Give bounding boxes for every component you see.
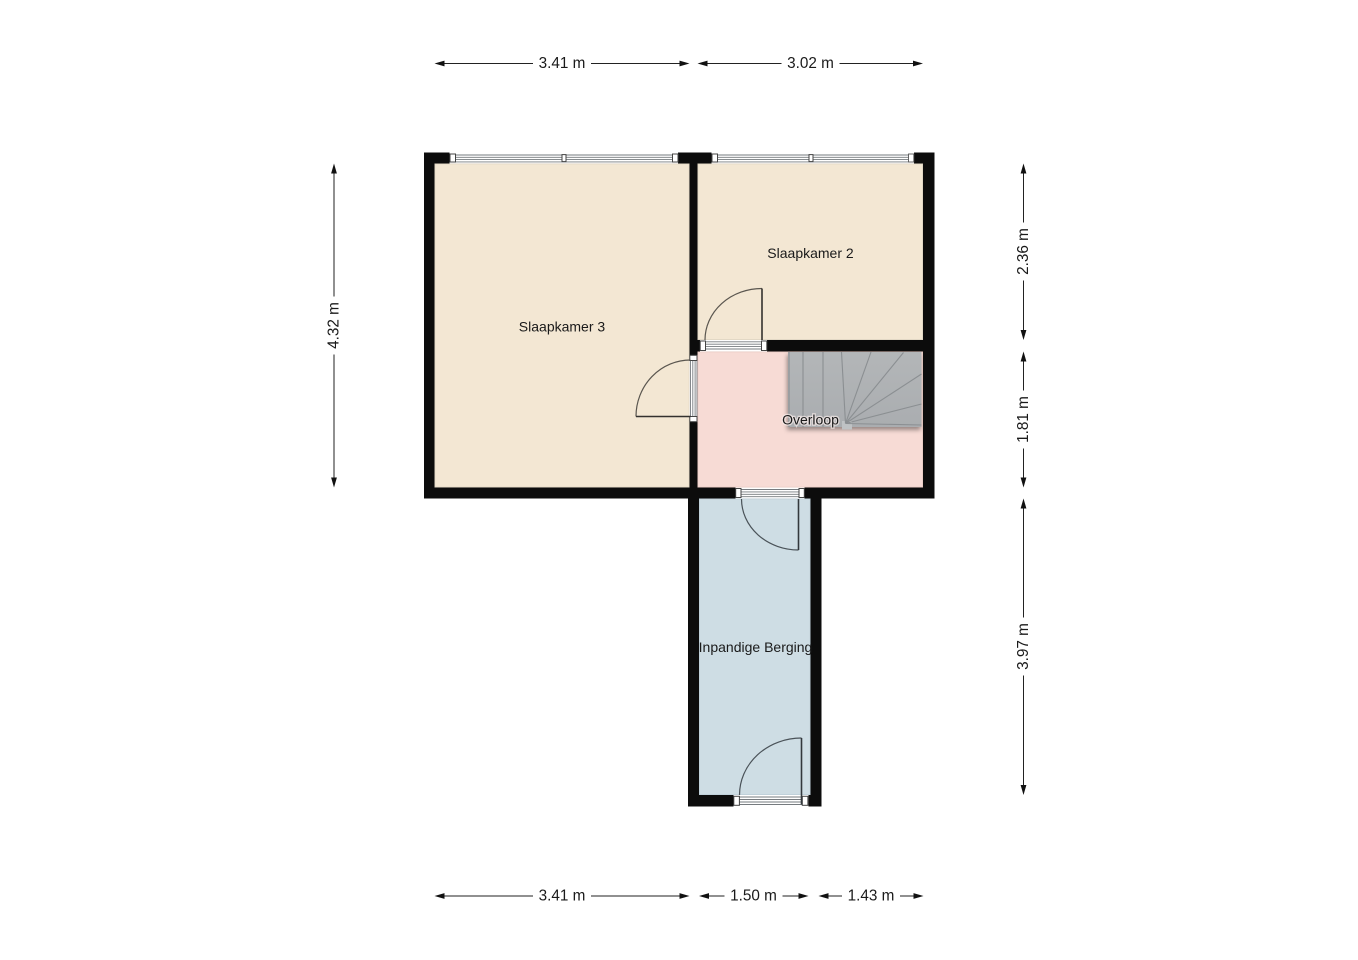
svg-text:Slaapkamer 2: Slaapkamer 2 [767,245,854,261]
svg-text:1.50 m: 1.50 m [730,888,777,905]
svg-text:4.32 m: 4.32 m [326,302,343,349]
svg-text:3.41 m: 3.41 m [539,888,586,905]
svg-text:2.36 m: 2.36 m [1015,228,1032,275]
svg-text:1.43 m: 1.43 m [848,888,895,905]
svg-text:1.81 m: 1.81 m [1015,396,1032,443]
svg-text:3.41 m: 3.41 m [539,55,586,72]
svg-text:Inpandige Berging: Inpandige Berging [699,639,813,655]
svg-text:3.97 m: 3.97 m [1015,623,1032,670]
svg-text:Overloop: Overloop [782,412,839,428]
svg-text:Slaapkamer 3: Slaapkamer 3 [519,319,606,335]
svg-text:3.02 m: 3.02 m [787,55,834,72]
